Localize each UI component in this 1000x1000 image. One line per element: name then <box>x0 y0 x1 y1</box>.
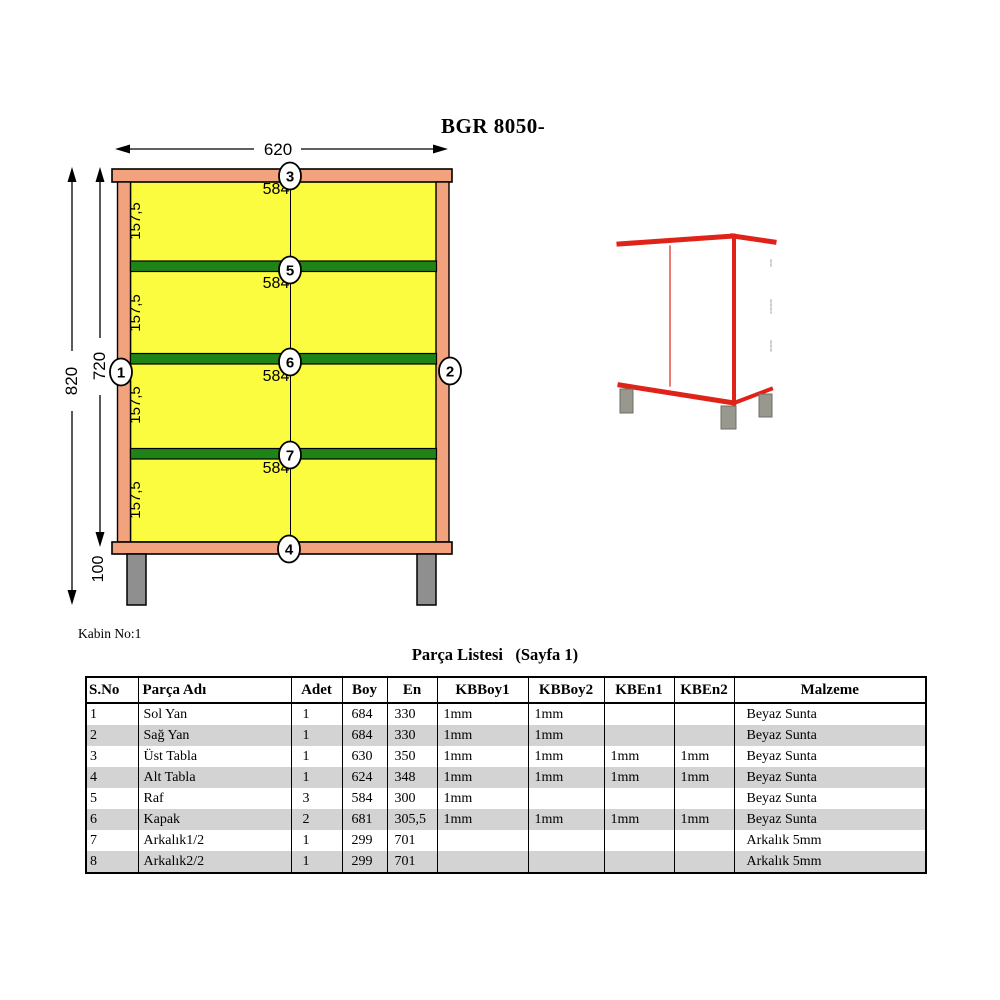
balloon-6: 6 <box>279 349 301 376</box>
leg-3d <box>759 394 772 417</box>
balloon-7: 7 <box>279 442 301 469</box>
table-cell: 1 <box>291 746 342 767</box>
balloon-5-label: 5 <box>286 263 294 280</box>
table-cell: Beyaz Sunta <box>734 767 926 788</box>
table-row: 2Sağ Yan16843301mm1mmBeyaz Sunta <box>86 725 926 746</box>
column-header: Adet <box>291 677 342 703</box>
table-cell: 1mm <box>674 746 734 767</box>
parts-list-title: Parça Listesi (Sayfa 1) <box>75 645 915 665</box>
table-cell: 8 <box>86 851 138 873</box>
table-cell: 1mm <box>528 703 604 725</box>
table-cell: 624 <box>342 767 387 788</box>
table-cell <box>604 851 674 873</box>
body-height-dimension: 720 <box>90 167 109 547</box>
cabin-caption: Kabin No:1 <box>78 626 141 642</box>
table-cell: 630 <box>342 746 387 767</box>
balloon-5: 5 <box>279 257 301 284</box>
table-cell <box>674 851 734 873</box>
table-cell: Sol Yan <box>138 703 291 725</box>
table-cell: Beyaz Sunta <box>734 703 926 725</box>
bottom-edge-left <box>620 385 734 403</box>
table-row: 7Arkalık1/21299701Arkalık 5mm <box>86 830 926 851</box>
table-cell: 1mm <box>528 746 604 767</box>
column-header: Boy <box>342 677 387 703</box>
parts-table-body: 1Sol Yan16843301mm1mmBeyaz Sunta2Sağ Yan… <box>86 703 926 873</box>
right-leg <box>417 554 436 605</box>
table-cell: 3 <box>291 788 342 809</box>
table-cell: Beyaz Sunta <box>734 725 926 746</box>
table-cell: 1mm <box>437 746 528 767</box>
table-cell: Sağ Yan <box>138 725 291 746</box>
table-cell: 1 <box>291 725 342 746</box>
table-cell: 2 <box>291 809 342 830</box>
balloon-4-label: 4 <box>285 542 294 559</box>
column-header: En <box>387 677 437 703</box>
table-cell: 299 <box>342 830 387 851</box>
section-height-label: 157,5 <box>127 202 144 240</box>
table-cell <box>437 851 528 873</box>
table-cell: Arkalık 5mm <box>734 830 926 851</box>
total-height-dimension: 820 <box>62 167 81 605</box>
table-cell: Arkalık2/2 <box>138 851 291 873</box>
table-cell: 330 <box>387 725 437 746</box>
table-cell: 584 <box>342 788 387 809</box>
table-cell: 1mm <box>437 809 528 830</box>
table-cell: 1mm <box>437 767 528 788</box>
table-cell <box>674 703 734 725</box>
table-cell <box>604 703 674 725</box>
balloon-7-label: 7 <box>286 448 294 465</box>
table-cell <box>604 788 674 809</box>
column-header: KBBoy1 <box>437 677 528 703</box>
table-cell: Alt Tabla <box>138 767 291 788</box>
table-cell: 684 <box>342 725 387 746</box>
width-dimension: 620 <box>115 140 448 159</box>
total-height-label: 820 <box>62 367 81 395</box>
table-cell: 1 <box>291 703 342 725</box>
balloon-1: 1 <box>110 359 132 386</box>
width-dimension-label: 620 <box>264 140 292 159</box>
table-cell <box>674 725 734 746</box>
table-cell: 1mm <box>437 703 528 725</box>
table-cell: 1mm <box>528 809 604 830</box>
table-cell <box>674 830 734 851</box>
table-cell: 1mm <box>674 809 734 830</box>
leg-height-label: 100 <box>90 556 107 583</box>
table-cell: 1mm <box>604 809 674 830</box>
balloon-1-label: 1 <box>117 365 125 382</box>
table-cell: 330 <box>387 703 437 725</box>
table-cell: 348 <box>387 767 437 788</box>
arrow-down-icon <box>68 590 77 605</box>
table-cell: 684 <box>342 703 387 725</box>
balloon-4: 4 <box>278 536 300 563</box>
arrow-left-icon <box>115 145 130 154</box>
table-cell: Raf <box>138 788 291 809</box>
table-row: 6Kapak2681305,51mm1mm1mm1mmBeyaz Sunta <box>86 809 926 830</box>
cabinet-3d-view <box>619 236 774 429</box>
cabinet-drawing: 620 820 720 100 157,5 157,5 157,5 157,5 … <box>0 0 1000 640</box>
table-cell <box>604 725 674 746</box>
table-cell: 1mm <box>437 725 528 746</box>
parts-list: S.NoParça AdıAdetBoyEnKBBoy1KBBoy2KBEn1K… <box>85 676 927 874</box>
table-cell: 1mm <box>528 767 604 788</box>
leg-3d <box>620 389 633 413</box>
balloon-2: 2 <box>439 358 461 385</box>
table-cell: 1mm <box>604 767 674 788</box>
table-cell: 1mm <box>528 725 604 746</box>
section-height-label: 157,5 <box>127 294 144 332</box>
table-cell: 1 <box>291 851 342 873</box>
top-edge-left <box>619 236 733 244</box>
column-header: KBEn2 <box>674 677 734 703</box>
table-cell: Kapak <box>138 809 291 830</box>
column-header: S.No <box>86 677 138 703</box>
table-row: 3Üst Tabla16303501mm1mm1mm1mmBeyaz Sunta <box>86 746 926 767</box>
table-cell: 4 <box>86 767 138 788</box>
table-cell: 350 <box>387 746 437 767</box>
table-cell: Beyaz Sunta <box>734 809 926 830</box>
table-cell: 701 <box>387 830 437 851</box>
arrow-up-icon <box>96 167 105 182</box>
top-edge-right <box>733 236 774 242</box>
column-header: Parça Adı <box>138 677 291 703</box>
left-leg <box>127 554 146 605</box>
table-cell: 1 <box>291 830 342 851</box>
table-cell: 2 <box>86 725 138 746</box>
table-cell <box>604 830 674 851</box>
table-cell: 1mm <box>674 767 734 788</box>
table-row: 8Arkalık2/21299701Arkalık 5mm <box>86 851 926 873</box>
arrow-right-icon <box>433 145 448 154</box>
table-cell <box>528 851 604 873</box>
table-cell: Arkalık 5mm <box>734 851 926 873</box>
table-row: 4Alt Tabla16243481mm1mm1mm1mmBeyaz Sunta <box>86 767 926 788</box>
table-cell: 300 <box>387 788 437 809</box>
table-cell <box>528 788 604 809</box>
table-cell: 1 <box>86 703 138 725</box>
table-cell: 7 <box>86 830 138 851</box>
table-cell <box>674 788 734 809</box>
table-cell: 1 <box>291 767 342 788</box>
table-cell: Beyaz Sunta <box>734 746 926 767</box>
table-row: 1Sol Yan16843301mm1mmBeyaz Sunta <box>86 703 926 725</box>
table-cell: Beyaz Sunta <box>734 788 926 809</box>
balloon-3-label: 3 <box>286 169 294 186</box>
section-height-label: 157,5 <box>127 386 144 424</box>
table-cell: 1mm <box>604 746 674 767</box>
table-cell: 299 <box>342 851 387 873</box>
parts-table-header-row: S.NoParça AdıAdetBoyEnKBBoy1KBBoy2KBEn1K… <box>86 677 926 703</box>
column-header: KBBoy2 <box>528 677 604 703</box>
table-cell: 5 <box>86 788 138 809</box>
table-cell: 701 <box>387 851 437 873</box>
arrow-up-icon <box>68 167 77 182</box>
table-cell: 1mm <box>437 788 528 809</box>
balloon-6-label: 6 <box>286 355 294 372</box>
table-row: 5Raf35843001mmBeyaz Sunta <box>86 788 926 809</box>
parts-table: S.NoParça AdıAdetBoyEnKBBoy1KBBoy2KBEn1K… <box>85 676 927 874</box>
table-cell: Üst Tabla <box>138 746 291 767</box>
table-cell: 6 <box>86 809 138 830</box>
table-cell: 681 <box>342 809 387 830</box>
balloon-3: 3 <box>279 163 301 190</box>
column-header: Malzeme <box>734 677 926 703</box>
column-header: KBEn1 <box>604 677 674 703</box>
table-cell <box>528 830 604 851</box>
balloon-2-label: 2 <box>446 364 454 381</box>
table-cell: 305,5 <box>387 809 437 830</box>
arrow-down-icon <box>96 532 105 547</box>
table-cell <box>437 830 528 851</box>
leg-3d <box>721 406 736 429</box>
table-cell: Arkalık1/2 <box>138 830 291 851</box>
table-cell: 3 <box>86 746 138 767</box>
section-height-label: 157,5 <box>127 481 144 519</box>
body-height-label: 720 <box>90 352 109 380</box>
